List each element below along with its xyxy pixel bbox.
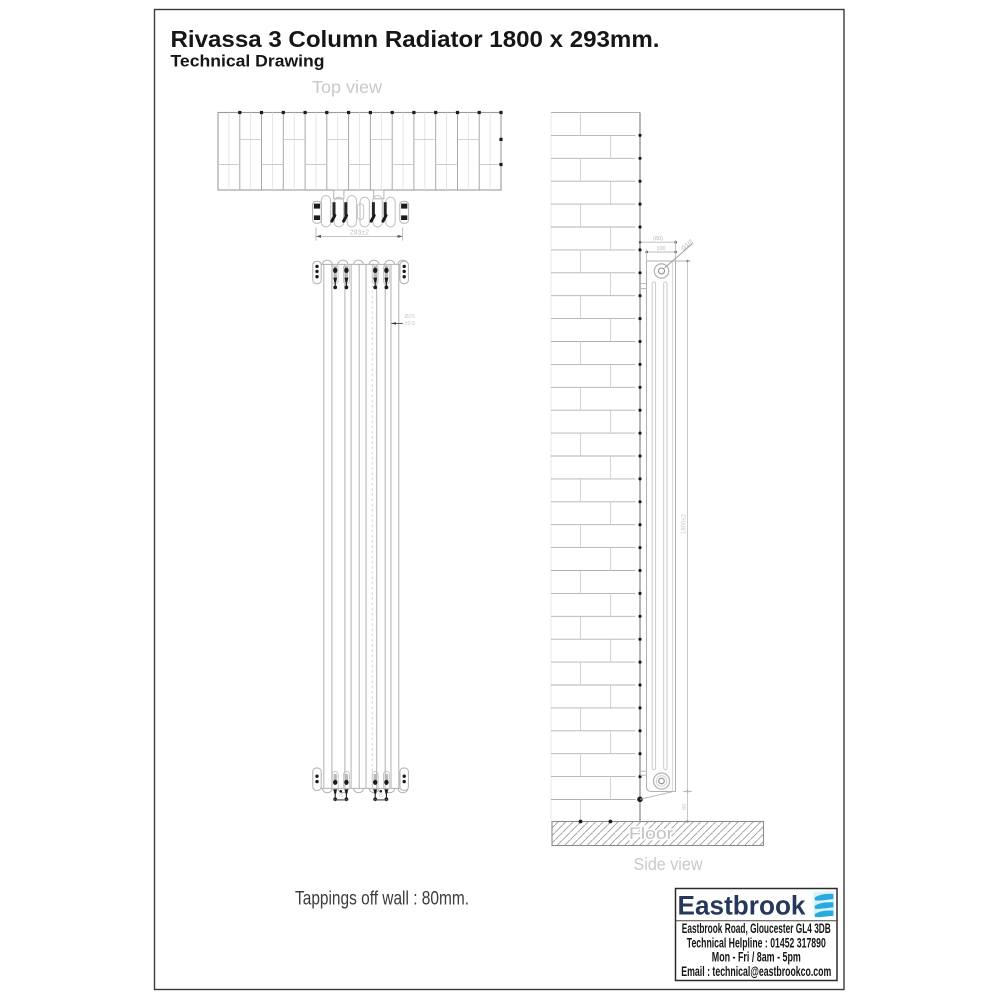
svg-text:80: 80 xyxy=(682,804,688,810)
svg-text:Eastbrook Road, Gloucester GL4: Eastbrook Road, Gloucester GL4 3DB xyxy=(682,921,831,936)
svg-text:Technical Drawing: Technical Drawing xyxy=(171,53,325,71)
svg-text:75: 75 xyxy=(338,793,344,798)
svg-text:75: 75 xyxy=(378,793,384,798)
svg-text:Eastbrook: Eastbrook xyxy=(678,891,807,921)
svg-text:Ø25: Ø25 xyxy=(405,314,415,320)
svg-text:Tappings off wall : 80mm.: Tappings off wall : 80mm. xyxy=(295,889,469,910)
svg-text:Side view: Side view xyxy=(634,854,703,874)
svg-text:Top view: Top view xyxy=(312,77,382,97)
svg-text:1800±2: 1800±2 xyxy=(682,513,688,534)
svg-text:Mon - Fri / 8am - 5pm: Mon - Fri / 8am - 5pm xyxy=(712,950,801,965)
svg-text:±0.5: ±0.5 xyxy=(405,321,416,327)
svg-text:100: 100 xyxy=(656,246,665,252)
svg-text:Floor: Floor xyxy=(629,825,674,843)
svg-text:Technical Helpline : 01452 317: Technical Helpline : 01452 317890 xyxy=(687,935,826,950)
svg-text:Rivassa 3 Column Radiator 1800: Rivassa 3 Column Radiator 1800 x 293mm. xyxy=(171,26,660,52)
svg-text:(80): (80) xyxy=(653,236,663,242)
svg-text:Email : technical@eastbrookco.: Email : technical@eastbrookco.com xyxy=(681,964,831,979)
svg-text:293±2: 293±2 xyxy=(350,230,370,237)
